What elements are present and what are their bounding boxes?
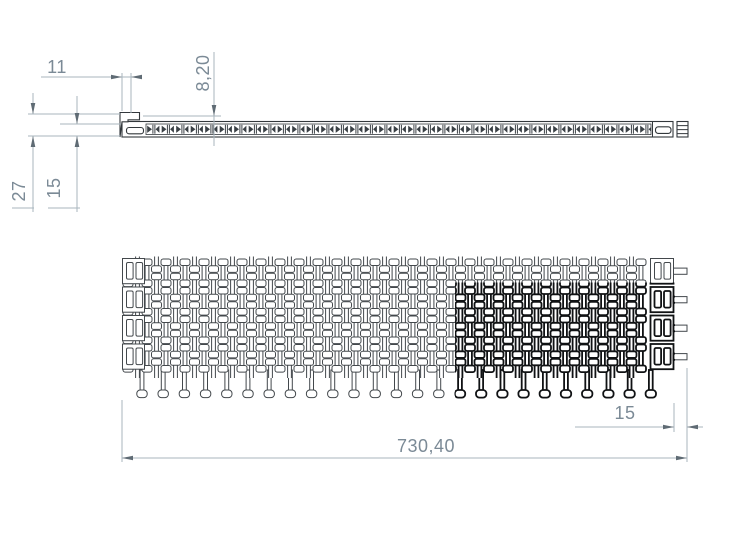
belt-link xyxy=(247,330,257,358)
belt-link xyxy=(332,259,342,287)
fringe-foot xyxy=(222,390,232,398)
belt-link xyxy=(190,273,200,301)
fringe-foot xyxy=(328,390,338,398)
belt-link xyxy=(332,345,342,373)
belt-link xyxy=(408,288,418,316)
fringe-foot xyxy=(306,390,316,398)
belt-link xyxy=(228,330,238,358)
dimension-annotations: 11 8,20 27 15 15 730,40 xyxy=(9,52,703,462)
fringe-foot xyxy=(285,390,295,398)
belt-link xyxy=(256,345,266,373)
belt-link xyxy=(380,330,390,358)
fringe-foot xyxy=(391,390,401,398)
dim-arrow xyxy=(31,136,36,147)
belt-link xyxy=(361,273,371,301)
belt-link xyxy=(399,273,409,301)
belt-link xyxy=(418,245,428,273)
dim-arrow xyxy=(75,113,80,124)
belt-link xyxy=(399,302,409,330)
belt-link xyxy=(579,259,589,287)
belt-link xyxy=(342,330,352,358)
belt-link xyxy=(323,302,333,330)
belt-link xyxy=(427,288,437,316)
belt-link xyxy=(370,345,380,373)
belt-link xyxy=(332,316,342,344)
cad-drawing-canvas: 11 8,20 27 15 15 730,40 xyxy=(0,0,734,551)
clip-slot xyxy=(127,320,134,337)
belt-link xyxy=(294,259,304,287)
belt-link xyxy=(285,330,295,358)
dim-arrow xyxy=(663,425,674,430)
belt-link xyxy=(399,245,409,273)
belt-link xyxy=(351,259,361,287)
fringe-foot xyxy=(434,390,444,398)
belt-link xyxy=(171,359,181,387)
belt-link xyxy=(228,302,238,330)
belt-link xyxy=(152,245,162,273)
fringe-foot xyxy=(158,390,168,398)
belt-link xyxy=(389,259,399,287)
belt-link xyxy=(446,259,456,287)
belt-link xyxy=(237,316,247,344)
clip-slot xyxy=(136,320,143,337)
belt-link xyxy=(199,288,209,316)
clip-slot xyxy=(655,263,662,280)
belt-link xyxy=(171,302,181,330)
belt-link xyxy=(218,259,228,287)
belt-link xyxy=(342,359,352,387)
belt-link xyxy=(313,316,323,344)
dim-arrow xyxy=(212,105,217,116)
belt-link xyxy=(399,359,409,387)
belt-link xyxy=(361,359,371,387)
clip-slot xyxy=(127,291,134,308)
fringe-foot xyxy=(179,390,189,398)
belt-link xyxy=(399,330,409,358)
belt-link xyxy=(551,245,561,273)
clip-slot xyxy=(127,263,134,280)
belt-link xyxy=(332,288,342,316)
belt-link xyxy=(437,330,447,358)
belt-link xyxy=(418,330,428,358)
fringe-stem xyxy=(416,370,420,392)
belt-link xyxy=(351,316,361,344)
clip-slot xyxy=(136,348,143,365)
fringe-foot xyxy=(137,390,147,398)
belt-link xyxy=(304,330,314,358)
dim-arrow xyxy=(687,425,698,430)
dim-arrow xyxy=(131,75,142,80)
belt-link xyxy=(408,259,418,287)
belt-link xyxy=(323,245,333,273)
belt-link xyxy=(171,273,181,301)
belt-link xyxy=(570,245,580,273)
belt-link xyxy=(437,273,447,301)
belt-link xyxy=(418,273,428,301)
belt-link xyxy=(589,245,599,273)
belt-link xyxy=(304,245,314,273)
belt-link xyxy=(228,245,238,273)
fringe-foot xyxy=(200,390,210,398)
belt-link xyxy=(161,316,171,344)
belt-link xyxy=(247,245,257,273)
clip-slot xyxy=(136,291,143,308)
belt-link xyxy=(209,273,219,301)
fringe-stem xyxy=(373,370,377,392)
belt-link xyxy=(152,359,162,387)
clip-slot xyxy=(136,263,143,280)
belt-link xyxy=(389,288,399,316)
fringe-foot xyxy=(243,390,253,398)
belt-link xyxy=(380,245,390,273)
dim-total-height-text: 27 xyxy=(9,180,29,201)
belt-link xyxy=(342,245,352,273)
belt-link xyxy=(598,259,608,287)
belt-link xyxy=(209,330,219,358)
rod-pin xyxy=(674,325,688,331)
belt-link xyxy=(351,345,361,373)
belt-link xyxy=(161,288,171,316)
belt-link xyxy=(190,359,200,387)
belt-link xyxy=(418,302,428,330)
belt-link xyxy=(218,316,228,344)
belt-link xyxy=(209,245,219,273)
belt-link xyxy=(275,316,285,344)
dim-arrow xyxy=(111,75,122,80)
belt-link xyxy=(475,245,485,273)
right-clip-slot xyxy=(656,127,672,134)
dim-arrow xyxy=(31,103,36,114)
belt-link xyxy=(285,245,295,273)
fringe-foot xyxy=(370,390,380,398)
belt-link xyxy=(465,259,475,287)
belt-link xyxy=(370,316,380,344)
belt-link xyxy=(522,259,532,287)
belt-link xyxy=(627,245,637,273)
belt-link xyxy=(190,302,200,330)
belt-link xyxy=(247,302,257,330)
belt-link xyxy=(256,316,266,344)
belt-link xyxy=(323,330,333,358)
belt-link xyxy=(209,359,219,387)
fringe-foot xyxy=(412,390,422,398)
dim-hook-width-text: 11 xyxy=(47,57,67,77)
belt-link xyxy=(380,359,390,387)
belt-link xyxy=(218,288,228,316)
belt-link xyxy=(152,302,162,330)
belt-link xyxy=(218,345,228,373)
belt-link xyxy=(180,316,190,344)
dim-thickness-text: 8,20 xyxy=(193,54,213,91)
belt-link xyxy=(209,302,219,330)
belt-link xyxy=(541,259,551,287)
belt-link xyxy=(636,259,646,287)
left-clip-slot xyxy=(127,128,144,134)
belt-link xyxy=(266,273,276,301)
belt-link xyxy=(617,259,627,287)
clip-slot xyxy=(664,263,671,280)
belt-link xyxy=(304,273,314,301)
belt-link xyxy=(342,273,352,301)
belt-link xyxy=(199,316,209,344)
belt-link xyxy=(446,316,456,344)
belt-link xyxy=(294,345,304,373)
dim-overall-width-text: 730,40 xyxy=(397,436,455,456)
belt-link xyxy=(437,245,447,273)
belt-link xyxy=(513,245,523,273)
belt-link xyxy=(427,259,437,287)
belt-link xyxy=(532,245,542,273)
belt-link xyxy=(237,345,247,373)
belt-link xyxy=(370,259,380,287)
belt-link xyxy=(503,259,513,287)
rod-pin xyxy=(674,268,688,274)
belt-link xyxy=(304,302,314,330)
dim-arrow xyxy=(676,456,687,461)
belt-link xyxy=(256,288,266,316)
rod-pin xyxy=(674,297,688,303)
fringe-foot xyxy=(264,390,274,398)
belt-link xyxy=(484,259,494,287)
belt-link xyxy=(608,245,618,273)
belt-link xyxy=(171,330,181,358)
belt-link xyxy=(560,259,570,287)
belt-link xyxy=(313,345,323,373)
belt-link xyxy=(285,273,295,301)
clip-slot xyxy=(127,348,134,365)
belt-link xyxy=(494,245,504,273)
belt-link xyxy=(427,316,437,344)
fringe-stem xyxy=(352,370,356,392)
fringe-stem xyxy=(225,370,229,392)
belt-link xyxy=(342,302,352,330)
belt-link xyxy=(446,288,456,316)
belt-link xyxy=(180,259,190,287)
strip-link-pattern xyxy=(146,124,651,135)
belt-link xyxy=(437,302,447,330)
dim-arrow xyxy=(122,456,133,461)
belt-link xyxy=(313,288,323,316)
dim-arrow xyxy=(75,136,80,147)
belt-link xyxy=(237,288,247,316)
belt-link xyxy=(266,330,276,358)
belt-link xyxy=(361,330,371,358)
belt-link xyxy=(199,259,209,287)
belt-link xyxy=(380,273,390,301)
belt-link xyxy=(199,345,209,373)
belt-link xyxy=(408,345,418,373)
belt-link xyxy=(408,316,418,344)
belt-link xyxy=(351,288,361,316)
belt-link xyxy=(389,345,399,373)
belt-link xyxy=(171,245,181,273)
belt-link xyxy=(266,245,276,273)
fringe-stem xyxy=(331,370,335,392)
belt-link xyxy=(323,273,333,301)
belt-link xyxy=(237,259,247,287)
belt-link xyxy=(380,302,390,330)
belt-link xyxy=(313,259,323,287)
belt-link xyxy=(275,288,285,316)
fringe-stem xyxy=(183,370,187,392)
belt-link xyxy=(456,245,466,273)
belt-link xyxy=(161,259,171,287)
belt-link xyxy=(361,302,371,330)
belt-link xyxy=(228,273,238,301)
belt-link xyxy=(190,245,200,273)
belt-link xyxy=(190,330,200,358)
dim-pin-protrusion-text: 15 xyxy=(614,403,635,423)
belt-link xyxy=(427,345,437,373)
dim-inner-height-text: 15 xyxy=(44,177,64,198)
rod-pin xyxy=(674,354,688,360)
belt-link xyxy=(266,302,276,330)
belt-link xyxy=(247,273,257,301)
belt-link xyxy=(370,288,380,316)
fringe-foot xyxy=(349,390,359,398)
fringe-stem xyxy=(204,370,208,392)
belt-link xyxy=(275,345,285,373)
belt-link xyxy=(161,345,171,373)
belt-link xyxy=(389,316,399,344)
fringe-stem xyxy=(140,370,144,392)
belt-link xyxy=(294,316,304,344)
belt-link xyxy=(180,345,190,373)
belt-link xyxy=(180,288,190,316)
belt-link xyxy=(446,345,456,373)
belt-link xyxy=(275,259,285,287)
belt-link xyxy=(285,302,295,330)
fringe-stem xyxy=(161,370,165,392)
belt-link xyxy=(152,330,162,358)
belt-link xyxy=(294,288,304,316)
belt-link xyxy=(256,259,266,287)
fringe-stem xyxy=(395,370,399,392)
belt-link xyxy=(361,245,371,273)
belt-link xyxy=(152,273,162,301)
engineering-drawing: 11 8,20 27 15 15 730,40 xyxy=(0,0,734,551)
